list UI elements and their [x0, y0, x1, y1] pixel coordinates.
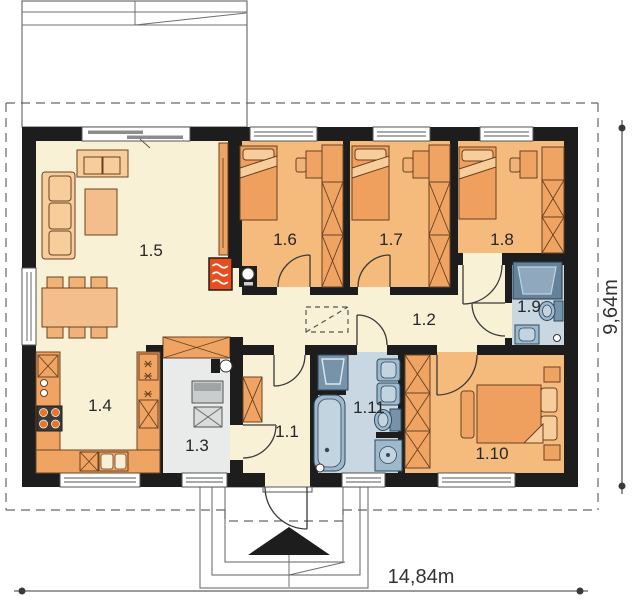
- bathtub-icon: [314, 395, 345, 471]
- hall-wardrobe: [243, 377, 262, 422]
- room-label-1-4: 1.4: [88, 396, 112, 415]
- wardrobe: [542, 147, 564, 253]
- tank-icon: [220, 360, 232, 372]
- shower-icon: [318, 355, 348, 390]
- fireplace-icon: [209, 258, 232, 290]
- desk: [413, 151, 430, 178]
- window-room-1-7: [373, 127, 430, 141]
- chair: [510, 158, 520, 172]
- floor-plan-page: 1.1 1.2 1.3 1.4 1.5 1.6 1.7 1.8 1.9 1.10…: [0, 0, 632, 600]
- nightstand: [544, 445, 560, 460]
- corridor-wardrobe: [163, 337, 230, 358]
- room-label-1-10: 1.10: [475, 444, 508, 463]
- window-kitchen: [60, 473, 140, 487]
- coffee-table: [85, 189, 117, 235]
- washing-machine-icon: [513, 262, 562, 299]
- wardrobe: [322, 145, 343, 287]
- bench: [461, 391, 474, 438]
- single-bed: [459, 147, 496, 219]
- window-room-1-3: [182, 473, 227, 487]
- room-label-1-5: 1.5: [139, 241, 163, 260]
- drain-icon: [554, 335, 561, 342]
- desk: [306, 151, 323, 178]
- room-label-1-7: 1.7: [379, 230, 403, 249]
- entrance-threshold: [263, 473, 312, 492]
- window-room-1-10: [438, 473, 515, 487]
- water-heater-icon: [375, 440, 402, 471]
- closet: [405, 355, 430, 468]
- height-dimension-label: 9,64m: [600, 279, 622, 335]
- window-room-1-6: [250, 127, 317, 141]
- nightstand: [544, 367, 560, 382]
- single-bed: [240, 146, 277, 220]
- floor-plan-drawing: 1.1 1.2 1.3 1.4 1.5 1.6 1.7 1.8 1.9 1.10…: [0, 0, 632, 600]
- washbasin-icon: [377, 359, 400, 381]
- window-room-1-11: [342, 473, 385, 487]
- chair: [403, 158, 413, 172]
- room-label-1-3: 1.3: [185, 436, 209, 455]
- appliance-icon: [194, 407, 222, 427]
- drain-icon: [316, 464, 324, 472]
- porch: [200, 487, 368, 588]
- sink-icon: [99, 452, 128, 471]
- boiler-icon: [192, 381, 223, 403]
- flue-vent: [244, 282, 253, 286]
- tv-cabinet: [219, 143, 228, 255]
- chair: [296, 158, 306, 172]
- window-room-1-8: [480, 127, 533, 141]
- room-label-1-9: 1.9: [517, 297, 541, 316]
- terrace: [22, 1, 247, 127]
- toilet-icon: [539, 301, 563, 321]
- washbasin-icon: [515, 325, 539, 344]
- single-bed: [352, 146, 389, 220]
- cabinet-left: [38, 355, 58, 377]
- dishwasher-icon: [80, 452, 98, 471]
- dimension-right: 9,64m: [600, 120, 626, 494]
- room-label-1-1: 1.1: [275, 422, 299, 441]
- room-label-1-8: 1.8: [490, 230, 514, 249]
- window-living-left: [22, 268, 36, 345]
- room-label-1-2: 1.2: [412, 310, 436, 329]
- desk: [520, 151, 537, 178]
- room-label-1-11: 1.11: [353, 398, 385, 417]
- cabinet-right: [139, 400, 158, 428]
- stove-icon: [37, 406, 62, 431]
- width-dimension-label: 14,84m: [388, 566, 455, 588]
- dining-table: [42, 277, 117, 338]
- wardrobe: [429, 145, 450, 287]
- stove-flue-icon: [242, 268, 254, 280]
- room-label-1-6: 1.6: [273, 230, 297, 249]
